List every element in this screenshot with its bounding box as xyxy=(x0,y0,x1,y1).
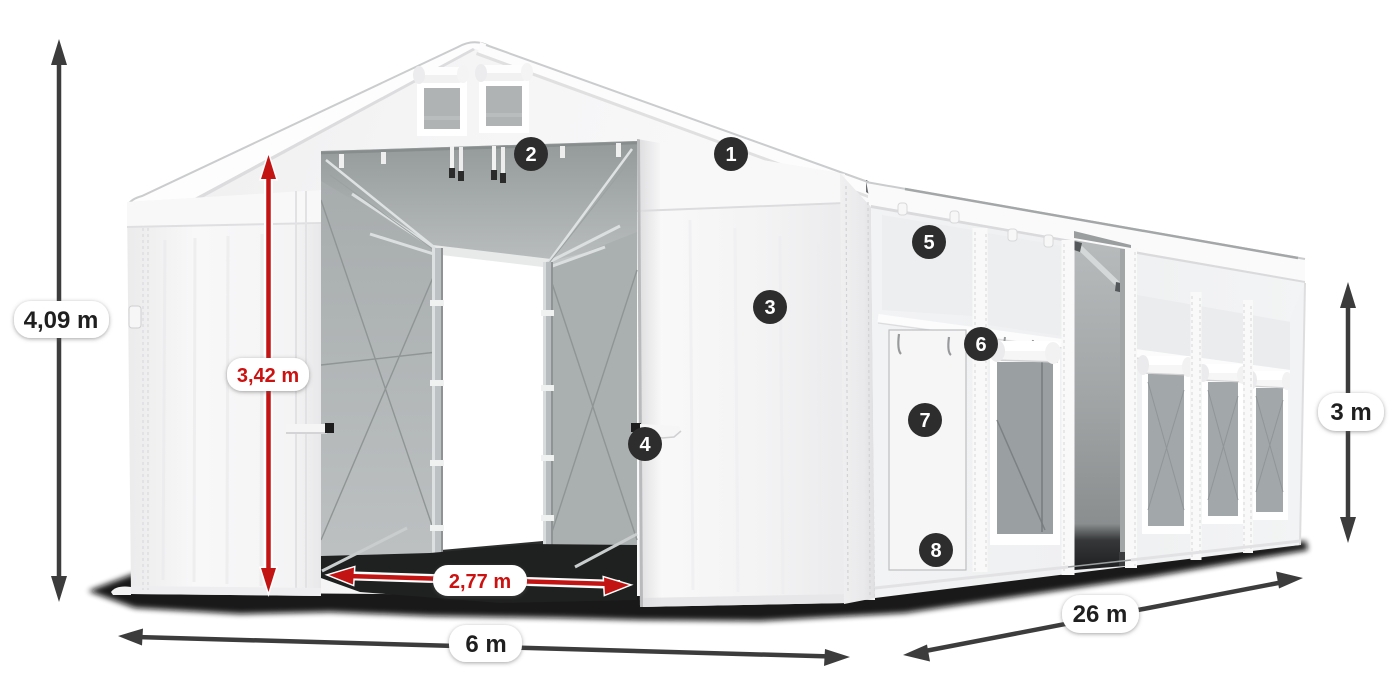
svg-text:2,77 m: 2,77 m xyxy=(449,571,511,593)
svg-text:5: 5 xyxy=(923,232,934,254)
svg-text:4,09 m: 4,09 m xyxy=(24,307,99,334)
svg-text:26 m: 26 m xyxy=(1073,601,1128,628)
svg-text:4: 4 xyxy=(639,434,651,456)
svg-text:8: 8 xyxy=(930,540,941,562)
svg-text:7: 7 xyxy=(919,410,930,432)
svg-text:6 m: 6 m xyxy=(465,631,506,658)
svg-text:3 m: 3 m xyxy=(1330,399,1371,426)
svg-text:6: 6 xyxy=(975,334,986,356)
svg-text:3,42 m: 3,42 m xyxy=(237,365,299,387)
svg-text:2: 2 xyxy=(525,144,536,166)
svg-text:3: 3 xyxy=(764,297,775,319)
svg-text:1: 1 xyxy=(725,144,736,166)
